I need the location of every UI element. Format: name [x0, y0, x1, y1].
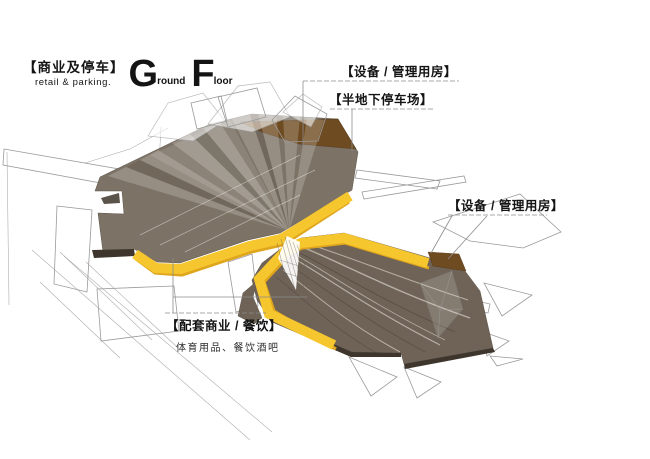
context-tri-right — [484, 283, 532, 316]
context-line-left-vertical — [7, 152, 9, 305]
page-title: 【商业及停车】 — [23, 56, 125, 76]
title-left: 【商业及停车】 retail & parking. — [23, 56, 125, 88]
diagram-canvas: 【商业及停车】 retail & parking. G round F loor… — [0, 0, 650, 459]
floor-text-loor: loor — [214, 76, 233, 88]
floor-title: G round F loor — [129, 60, 233, 89]
floor-letter-f: F — [191, 60, 213, 89]
callout-equipment-right: 【设备 / 管理用房】 — [448, 195, 564, 214]
callout-equipment-top: 【设备 / 管理用房】 — [341, 61, 457, 80]
page-subtitle: retail & parking. — [23, 77, 125, 88]
floor-letter-g: G — [129, 60, 158, 89]
upper-mass-edge-dark — [92, 249, 135, 258]
callout-retail-dining: 【配套商业 / 餐饮】 — [166, 315, 282, 334]
callout-parking: 【半地下停车场】 — [329, 89, 433, 108]
upper-mass-notch-patch — [101, 193, 120, 204]
context-quad-left — [54, 206, 92, 292]
floor-text-round: round — [157, 76, 185, 88]
callout-retail-dining-sub: 体育用品、餐饮酒吧 — [176, 339, 280, 354]
title-block: 【商业及停车】 retail & parking. G round F loor — [23, 56, 233, 88]
